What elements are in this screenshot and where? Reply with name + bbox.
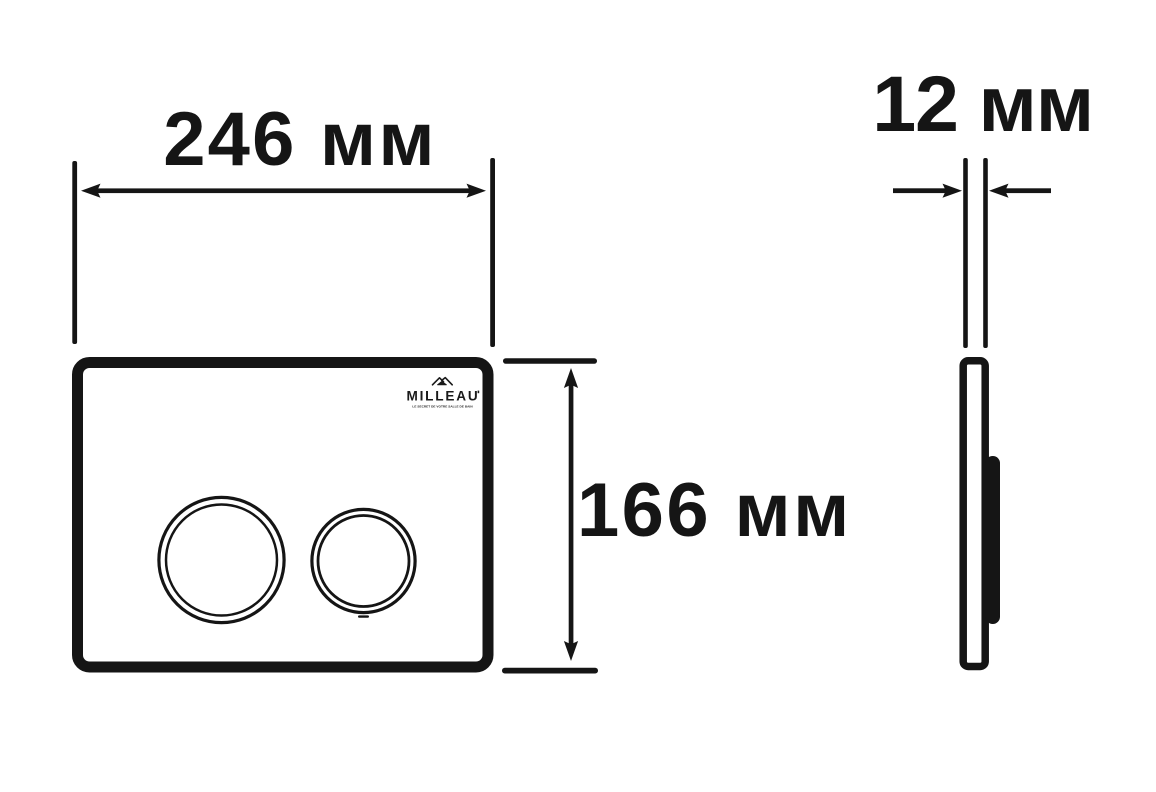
- svg-text:166 мм: 166 мм: [577, 468, 852, 553]
- svg-text:12 мм: 12 мм: [872, 59, 1093, 148]
- svg-text:246 мм: 246 мм: [163, 97, 437, 182]
- svg-text:MILLEAU: MILLEAU: [406, 389, 479, 404]
- svg-text:LE SECRET DE VOTRE SALLE DE BA: LE SECRET DE VOTRE SALLE DE BAIN: [412, 404, 473, 408]
